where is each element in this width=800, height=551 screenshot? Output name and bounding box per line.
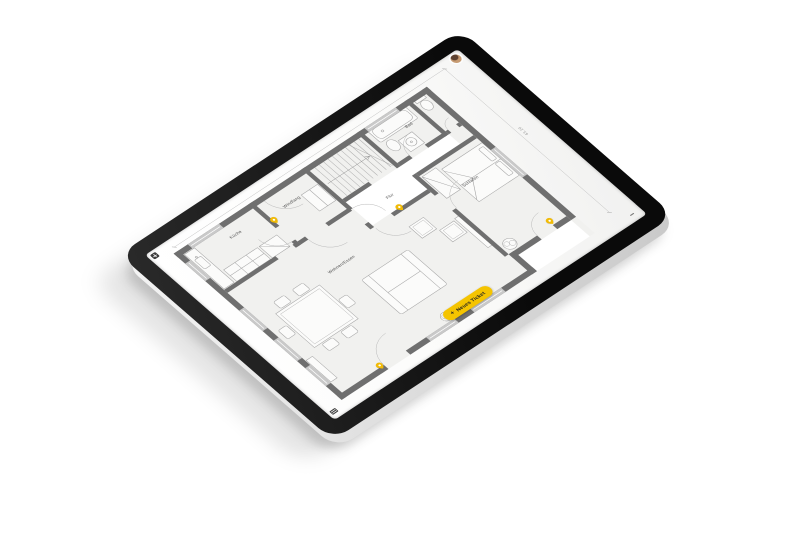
- ticket-pin-2[interactable]: [394, 203, 404, 211]
- product-shot-stage: KücheWindfangBadFlurSchlafenWohnen/Essen…: [0, 0, 800, 551]
- ticket-pin-3[interactable]: [544, 217, 554, 225]
- plus-icon: +: [449, 310, 457, 316]
- ticket-pin-4[interactable]: [374, 361, 384, 369]
- ticket-pin-1[interactable]: [269, 216, 279, 224]
